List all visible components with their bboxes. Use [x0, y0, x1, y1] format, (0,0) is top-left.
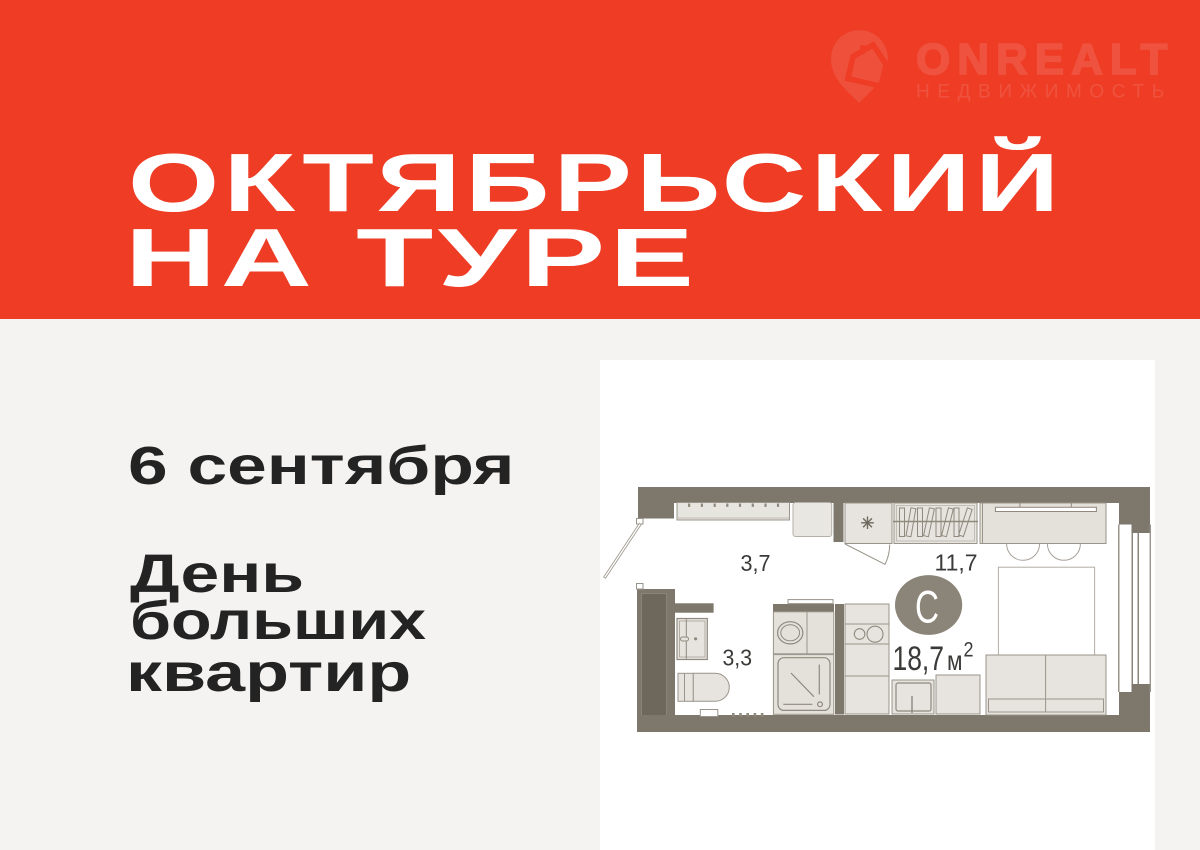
svg-text:18,7: 18,7	[893, 640, 945, 678]
svg-text:НЕДВИЖИМОСТЬ: НЕДВИЖИМОСТЬ	[916, 82, 1172, 103]
svg-text:С: С	[915, 581, 939, 632]
svg-text:м: м	[947, 645, 963, 676]
svg-text:3,3: 3,3	[723, 644, 753, 670]
svg-text:ONREALT: ONREALT	[916, 35, 1174, 84]
svg-text:2: 2	[964, 639, 974, 662]
svg-text:11,7: 11,7	[935, 549, 978, 575]
svg-text:3,7: 3,7	[741, 550, 771, 576]
